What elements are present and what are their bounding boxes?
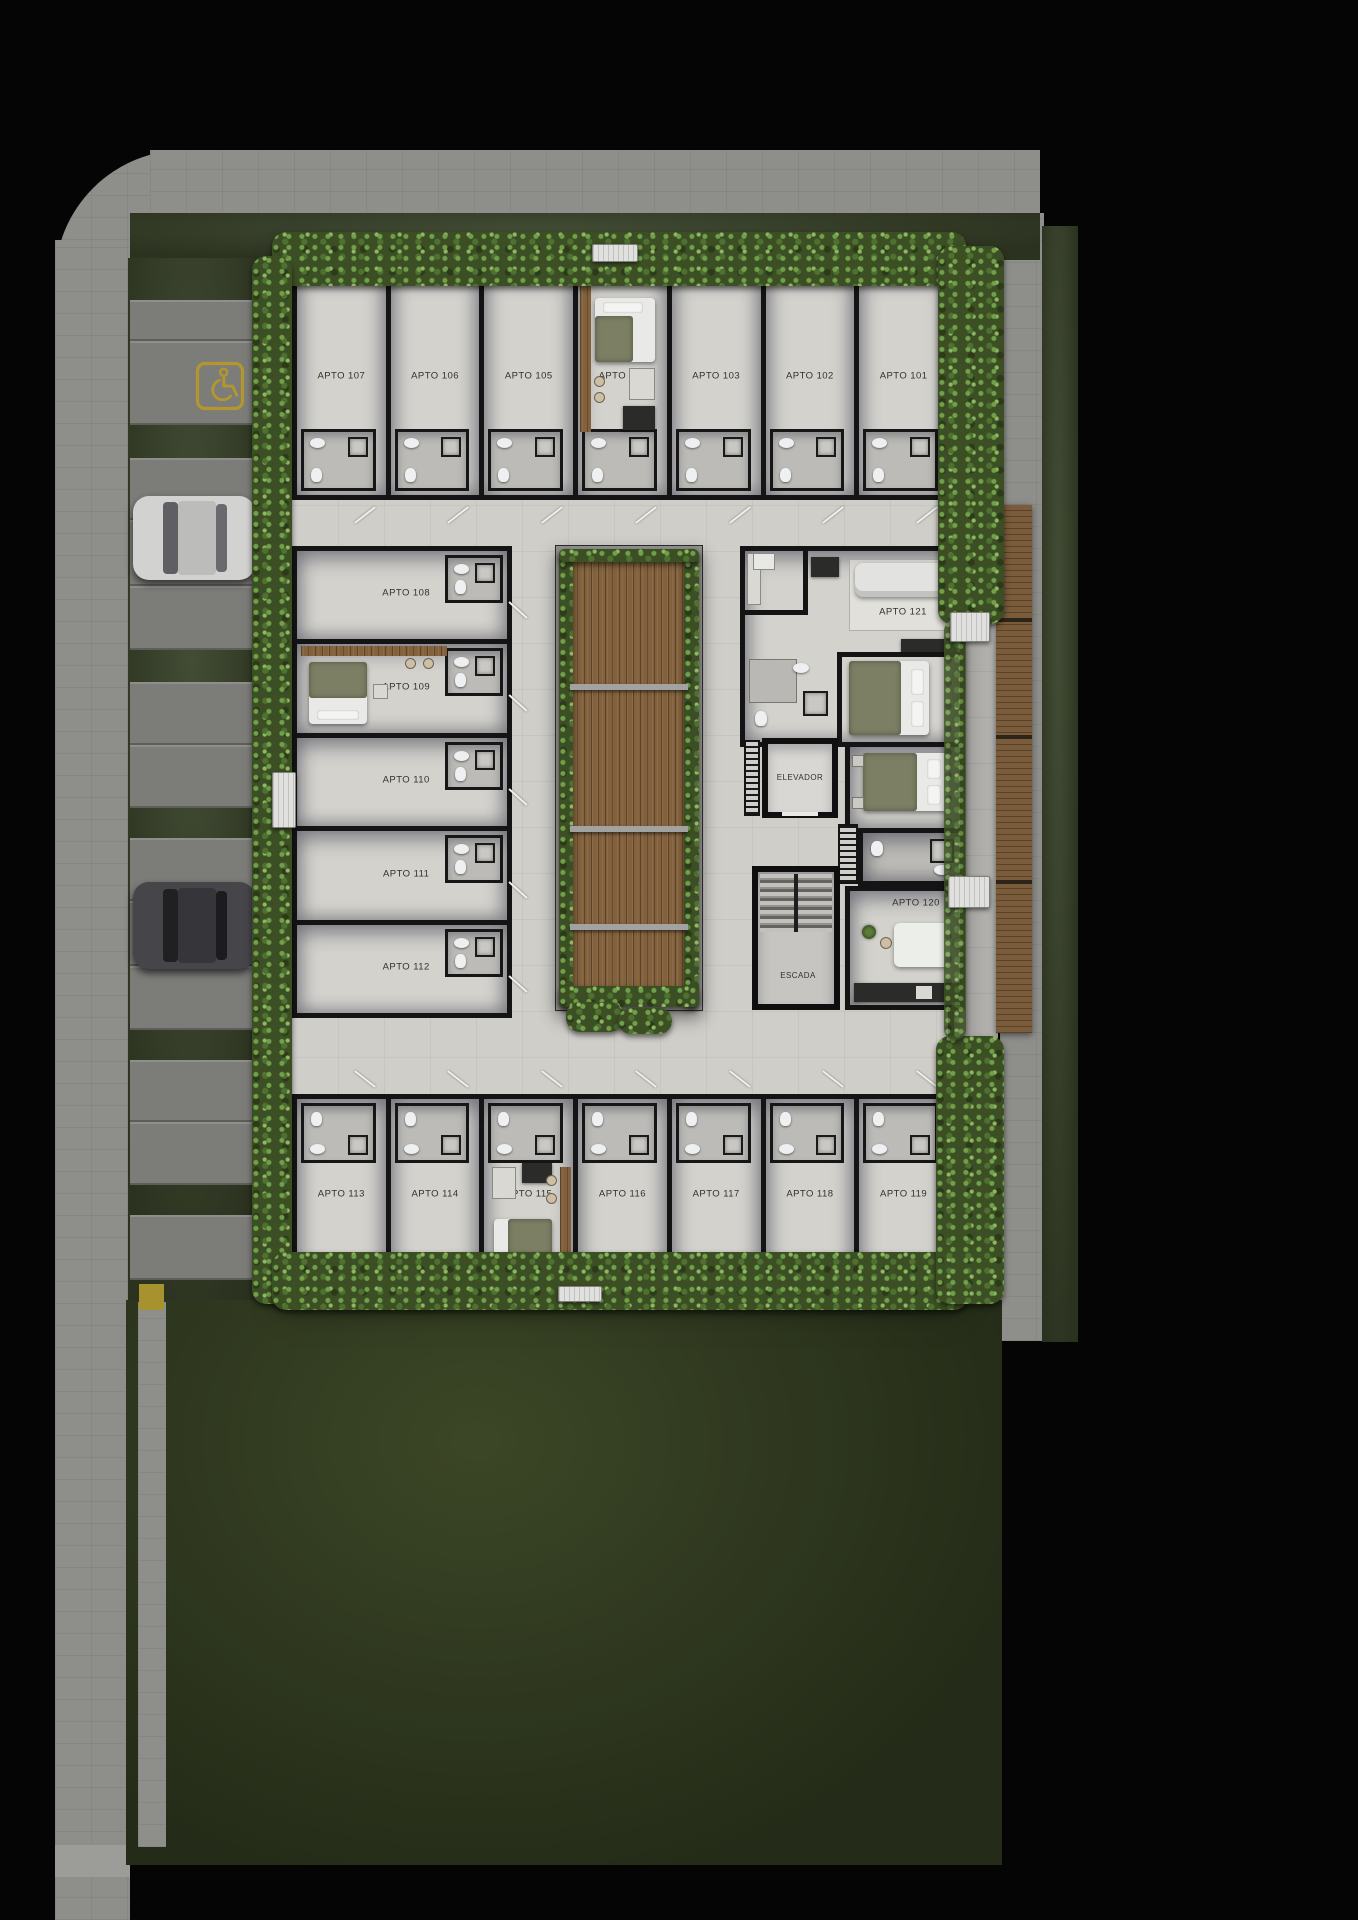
nightstand [852,797,864,809]
unit-label: APTO 116 [599,1189,646,1199]
deck-beam [570,684,688,690]
sidewalk-top [150,150,1040,214]
terrace-divider [996,735,1032,739]
unit-label: APTO 102 [786,371,834,381]
bathroom-pod [445,742,503,790]
path-yellow-marker [139,1284,164,1310]
nightstand [373,684,388,699]
shower-fixture [441,1135,461,1155]
unit-label: APTO 118 [786,1189,833,1199]
closet [749,659,797,703]
shower-fixture [723,437,743,457]
sink-fixture [793,663,809,673]
toilet-fixture [455,673,466,687]
unit-label: APTO 110 [383,775,430,785]
sink-fixture [591,438,606,448]
terrace-divider [996,880,1032,884]
sink-fixture [454,657,469,667]
unit-label: APTO 108 [382,589,430,599]
sink-fixture [872,1144,887,1154]
unit-label: APTO 105 [505,371,553,381]
unit-label: APTO 103 [692,371,740,381]
wood-floor-strip [580,274,591,432]
sink-fixture [404,438,419,448]
sink-fixture [310,1144,325,1154]
stool [546,1175,557,1186]
kitchen-cabinet [629,368,655,400]
bed-blanket [849,661,901,735]
toilet-fixture [498,468,509,482]
bed [595,298,655,362]
shower-fixture [475,843,495,863]
utility-box [272,772,296,828]
accessible-parking-icon [195,360,245,412]
shower-fixture [910,1135,930,1155]
bathroom-pod [488,1103,563,1163]
parking-stall [130,745,268,808]
unit-label: APTO 114 [412,1189,459,1199]
unit-room: APTO 102 [761,267,860,500]
parking-stall [130,682,268,745]
wardrobe [492,1167,516,1199]
toilet-fixture [780,468,791,482]
unit-room-apto-121: APTO 121 [740,546,965,747]
stairs-label: ESCADA [780,972,816,980]
sink-fixture [872,438,887,448]
bathroom-pod [770,1103,845,1163]
bathroom-pod [582,1103,657,1163]
nightstand [852,755,864,767]
toilet-fixture [755,711,767,726]
courtyard-vine-top [559,549,699,562]
bedroom-wall [837,652,960,657]
sink-fixture [454,844,469,854]
car-roof [178,888,216,963]
bed-pillow [317,710,359,720]
unit-room: APTO 105 [479,267,578,500]
shower-fixture [475,656,495,676]
unit-room: APTO 108 [292,546,512,644]
toilet-fixture [498,1112,509,1126]
car-roof [178,501,216,575]
bathroom-pod [395,429,470,491]
unit-room: APTO 111 [292,826,512,924]
sidewalk-left [55,240,130,1920]
sink-fixture [310,438,325,448]
bed-pillow [911,701,924,727]
grass-right-strip [1042,226,1078,1342]
bathroom-pod [445,648,503,696]
toilet-fixture [686,1112,697,1126]
unit-room: APTO 112 [292,920,512,1018]
bathroom-pod [863,1103,938,1163]
bed-pillow [927,759,941,779]
sink-fixture [404,1144,419,1154]
unit-label: APTO 112 [383,962,430,972]
bathroom-pod [445,555,503,603]
utility-box [592,244,638,262]
bathroom-pod [301,1103,376,1163]
sink-fixture [454,938,469,948]
bathroom-pod [676,1103,751,1163]
shower-fixture [723,1135,743,1155]
bed [849,661,929,735]
unit-label: APTO 109 [382,682,430,692]
sink-fixture [454,751,469,761]
sink-fixture [685,438,700,448]
hedge-bottom [272,1252,968,1310]
parking-stall [130,966,268,1030]
deck-beam [570,826,688,832]
unit-room: APTO 109 [292,639,512,737]
fridge [753,553,775,570]
bed-pillow [603,302,643,313]
bed-pillow [911,669,924,695]
shower-fixture [348,1135,368,1155]
shower-fixture [816,1135,836,1155]
bedroom-wall [837,652,842,742]
shower-fixture [348,437,368,457]
wood-floor-strip [301,646,447,656]
parking-stall [130,1060,268,1122]
floor-plan-scene: APTO 107APTO 106APTO 105APTO 104APTO 103… [0,0,1358,1920]
parked-car-dark [133,878,255,973]
toilet-fixture [405,1112,416,1126]
courtyard-vine-spill [618,1008,672,1034]
car-rear-window [216,504,227,572]
crosswalk-band [55,1845,130,1877]
bed-blanket [863,753,917,811]
stair-rail [794,874,798,932]
parking-stall [130,586,268,650]
bathroom-pod [582,429,657,491]
stool [594,376,605,387]
elevator-room: ELEVADOR [762,738,838,818]
toilet-fixture [686,468,697,482]
toilet-fixture [455,767,466,781]
unit-label: APTO 107 [317,371,365,381]
kitchen-wall [803,551,808,615]
terrace-divider [996,618,1032,622]
bathroom-pod [488,429,563,491]
bed-pillow [927,785,941,805]
bed [309,662,367,724]
stairwell: ESCADA [752,866,840,1010]
utility-box [950,612,990,642]
bathroom-pod [395,1103,470,1163]
shaft-duct [744,740,760,816]
hedge-right-bottom [936,1036,1004,1304]
car-windshield [163,889,178,962]
shower-fixture [535,1135,555,1155]
garden-path [138,1302,166,1847]
bathroom-pod [445,929,503,977]
shower-fixture [629,1135,649,1155]
toilet-fixture [592,1112,603,1126]
toilet-fixture [455,954,466,968]
shower-fixture [475,937,495,957]
desk [894,923,950,967]
toilet-fixture [780,1112,791,1126]
stool [405,658,416,669]
unit-label: APTO 121 [879,607,927,617]
bathroom-pod [770,429,845,491]
bed [863,753,949,811]
bathroom-pod [863,429,938,491]
unit-room: APTO 110 [292,733,512,831]
shower-fixture [629,437,649,457]
courtyard-vine-left [559,549,573,1007]
chair [880,937,892,949]
hedge-right-top [938,246,1004,624]
toilet-fixture [405,468,416,482]
courtyard-vine-right [684,549,699,1007]
unit-label: APTO 119 [880,1189,927,1199]
shower-fixture [475,750,495,770]
bathroom-pod [301,429,376,491]
shower-fixture [803,691,828,716]
unit-label: APTO 106 [411,371,459,381]
stool [423,658,434,669]
parking-stall [130,1215,268,1280]
utility-box [948,876,990,908]
toilet-fixture [871,841,883,856]
unit-room: APTO 104 [573,267,672,500]
toilet-fixture [455,580,466,594]
toilet-fixture [311,1112,322,1126]
shower-fixture [910,437,930,457]
car-rear-window [216,891,227,960]
stool [546,1193,557,1204]
bottom-lawn [126,1300,1002,1865]
sink-fixture [779,1144,794,1154]
shower-fixture [816,437,836,457]
shower-fixture [535,437,555,457]
shaft-duct [838,824,858,884]
sink-fixture [685,1144,700,1154]
shower-fixture [441,437,461,457]
sofa [855,563,951,597]
toilet-fixture [311,468,322,482]
sink-fixture [454,564,469,574]
unit-label: APTO 101 [880,371,928,381]
unit-label: APTO 120 [892,898,940,908]
plant [862,925,876,939]
bed-blanket [309,662,367,698]
stool [594,392,605,403]
appliance [916,986,932,999]
sink-fixture [497,438,512,448]
bathroom-pod [676,429,751,491]
sink-fixture [779,438,794,448]
toilet-fixture [873,468,884,482]
unit-room: APTO 106 [386,267,485,500]
elevator-label: ELEVADOR [777,774,824,782]
kitchen-counter [623,406,655,430]
unit-label: APTO 113 [318,1189,365,1199]
unit-room: APTO 107 [292,267,391,500]
toilet-fixture [592,468,603,482]
shower-fixture [475,563,495,583]
courtyard-vine-spill [566,1002,624,1032]
sink-fixture [497,1144,512,1154]
car-windshield [163,502,178,574]
parked-car-light [133,492,255,584]
bathroom-pod [445,835,503,883]
unit-room: APTO 103 [667,267,766,500]
unit-label: APTO 111 [383,869,429,879]
cooktop [811,557,839,577]
deck-beam [570,924,688,930]
parking-stall [130,300,268,341]
unit-label: APTO 117 [693,1189,740,1199]
kitchen-wall [745,610,807,615]
toilet-fixture [873,1112,884,1126]
bed-blanket [595,316,633,362]
utility-box [558,1286,602,1302]
toilet-fixture [455,860,466,874]
parking-stall [130,1122,268,1185]
elevator-door [782,812,818,816]
sink-fixture [591,1144,606,1154]
hedge-right-mid [944,620,966,1040]
